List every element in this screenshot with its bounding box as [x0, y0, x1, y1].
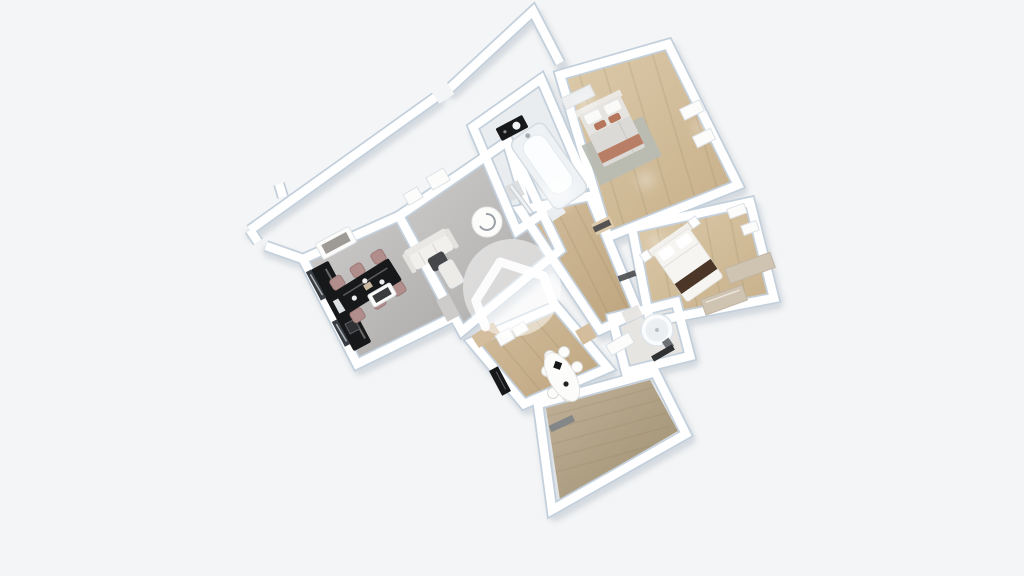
shower-drain	[655, 328, 659, 332]
watermark	[463, 239, 561, 337]
floorplan-render	[0, 0, 1024, 576]
floorplan-svg	[0, 0, 1024, 576]
table-decor-small	[563, 381, 568, 386]
round-disc-lamp	[472, 207, 502, 237]
